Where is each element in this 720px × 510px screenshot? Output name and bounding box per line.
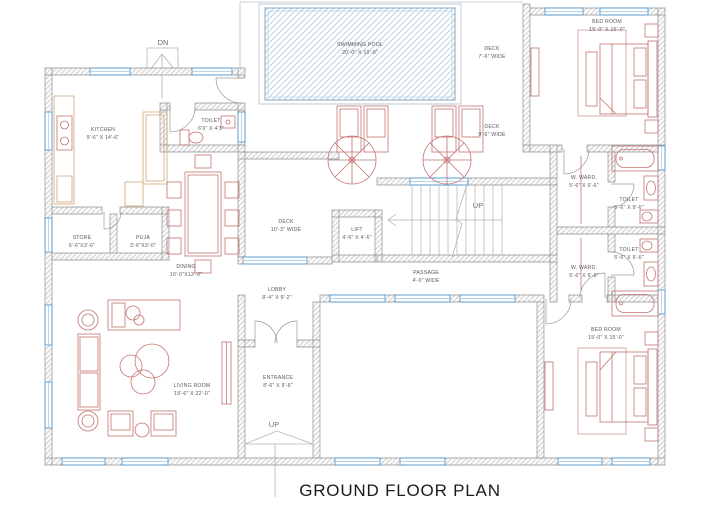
room-label-deck-top: DECK xyxy=(484,46,500,52)
door-entrance-left xyxy=(255,321,277,343)
door-entrance-right xyxy=(275,321,297,343)
bathroom-bottom-fixtures xyxy=(640,239,658,286)
room-label-wward-top: W. WARD. xyxy=(571,175,597,181)
room-dims-living-room: 19'-6" X 22'-0" xyxy=(174,391,210,397)
floor-plan-canvas: DN SWIMMING POOL 20'-0" X 10'-0" DECK 7'… xyxy=(0,0,720,510)
room-dims-lobby: 8'-4" X 9'-2" xyxy=(262,295,292,301)
room-label-puja: PUJA xyxy=(136,235,150,241)
room-label-wward-bottom: W. WARD. xyxy=(571,265,597,271)
room-label-toilet-bottom: TOILET xyxy=(619,247,639,253)
room-dims-toilet-bottom: 5'-6" X 9'-6" xyxy=(614,255,644,261)
room-label-bedroom-top: BED ROOM xyxy=(592,19,622,25)
staircase xyxy=(388,181,502,257)
room-dims-toilet-top: 5'-6" X 9'-6" xyxy=(614,205,644,211)
room-dims-toilet-kitchen: 6'6" X 4'3" xyxy=(198,126,224,132)
room-label-lift: LIFT xyxy=(351,227,363,233)
bed-bottom-icon xyxy=(545,332,658,441)
stove-icon xyxy=(57,116,72,150)
room-label-deck-left: DECK xyxy=(278,219,294,225)
room-dims-passage: 4'-0" WIDE xyxy=(412,278,440,284)
page-title: GROUND FLOOR PLAN xyxy=(299,481,501,500)
pool-loungers-icon xyxy=(337,106,483,152)
dining-table-icon xyxy=(167,155,239,273)
room-dims-deck-top: 7'-6" WIDE xyxy=(478,54,506,60)
door-wward-top xyxy=(564,149,589,174)
room-dims-wward-top: 5'-6" X 9'-6" xyxy=(569,183,599,189)
kitchen-cabinets xyxy=(54,96,167,206)
room-dims-wward-bottom: 5'-6" X 9'-6" xyxy=(569,273,599,279)
room-dims-deck-mid: 9'-6" WIDE xyxy=(478,132,506,138)
room-dims-bedroom-bottom: 15'-0" X 15'-0" xyxy=(588,335,624,341)
room-label-swimming-pool: SWIMMING POOL xyxy=(337,42,383,48)
room-label-store: STORE xyxy=(73,235,92,241)
door-kitchen-entry xyxy=(216,78,241,103)
room-label-lobby: LOBBY xyxy=(268,287,287,293)
room-dims-dining: 10'-0"X13'-0" xyxy=(170,272,203,278)
up-entrance-label: UP xyxy=(269,420,279,429)
room-dims-swimming-pool: 20'-0" X 10'-0" xyxy=(342,50,378,56)
room-dims-kitchen: 9'-6" X 14'-6" xyxy=(87,135,120,141)
room-label-toilet-top: TOILET xyxy=(619,197,639,203)
room-dims-lift: 4'-6" X 4'-6" xyxy=(342,235,372,241)
bathroom-top-fixtures xyxy=(640,176,658,223)
room-label-passage: PASSAGE xyxy=(413,270,439,276)
room-label-entrance: ENTRANCE xyxy=(263,375,293,381)
room-label-toilet-kitchen: TOILET xyxy=(201,118,221,124)
room-dims-store: 6'-6"X3'-6" xyxy=(69,243,95,249)
living-room-set-icon xyxy=(78,300,231,437)
door-toilet-top xyxy=(611,184,634,207)
door-toilet-kitchen xyxy=(170,107,195,132)
room-dims-bedroom-top: 15'-0" X 15'-0" xyxy=(589,27,625,33)
room-label-bedroom-bottom: BED ROOM xyxy=(591,327,621,333)
dn-label: DN xyxy=(158,38,169,47)
room-label-living-room: LIVING ROOM xyxy=(174,383,211,389)
room-label-dining: DINING xyxy=(176,264,195,270)
door-bedroom-bottom xyxy=(546,299,571,324)
room-dims-deck-left: 10'-3" WIDE xyxy=(271,227,302,233)
room-dims-entrance: 8'-6" X 9'-6" xyxy=(263,383,293,389)
up-stairs-label: UP xyxy=(473,201,483,210)
bed-top-icon xyxy=(531,24,658,133)
room-label-kitchen: KITCHEN xyxy=(91,127,115,133)
ground-floor-plan-drawing: DN SWIMMING POOL 20'-0" X 10'-0" DECK 7'… xyxy=(0,0,720,510)
umbrella-icon xyxy=(328,136,471,184)
room-label-deck-mid: DECK xyxy=(484,124,500,130)
room-dims-puja: 3'-6"X3'-0" xyxy=(130,243,156,249)
